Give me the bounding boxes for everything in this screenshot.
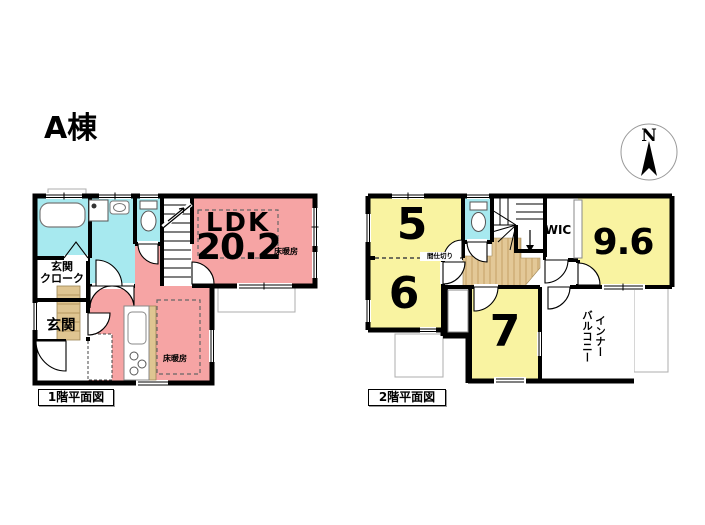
floorplan-sheet: N A棟 LDK 20.2 床暖房 床暖房 玄関 クローク 玄関 5 6 7 9… xyxy=(0,0,705,525)
partition-label: 間仕切り xyxy=(420,252,460,261)
inner-balcony-label: インナー バルコニー xyxy=(576,300,606,372)
north-arrow: N xyxy=(621,124,677,180)
entrance-cloak-label: 玄関 クローク xyxy=(34,261,90,285)
ldk-size-label: 20.2 xyxy=(196,229,280,268)
wic-label: WIC xyxy=(543,224,573,237)
toilet-1f xyxy=(140,201,157,231)
floor1-caption: 1階平面図 xyxy=(38,389,114,406)
floor2-caption: 2階平面図 xyxy=(368,389,446,406)
washroom-sink xyxy=(110,201,129,214)
bathtub xyxy=(40,203,85,227)
kitchen-sink xyxy=(128,312,146,344)
wic-closet-strip xyxy=(574,200,582,258)
washing-machine xyxy=(89,200,108,221)
floor-heating-label-kitchen: 床暖房 xyxy=(158,355,192,364)
room96-label: 9.6 xyxy=(590,224,656,263)
kitchen-counter xyxy=(124,306,156,380)
room5-label: 5 xyxy=(390,201,434,249)
sheet-title: A棟 xyxy=(44,114,184,144)
room7-closet xyxy=(448,290,468,332)
entrance-label: 玄関 xyxy=(38,319,84,335)
north-needle-icon xyxy=(641,141,657,176)
room7-label: 7 xyxy=(483,308,527,356)
floor-heating-label-ldk: 床暖房 xyxy=(270,248,302,257)
toilet-2f xyxy=(470,202,487,232)
pantry-dashed xyxy=(88,334,112,380)
room6-label: 6 xyxy=(382,270,426,318)
